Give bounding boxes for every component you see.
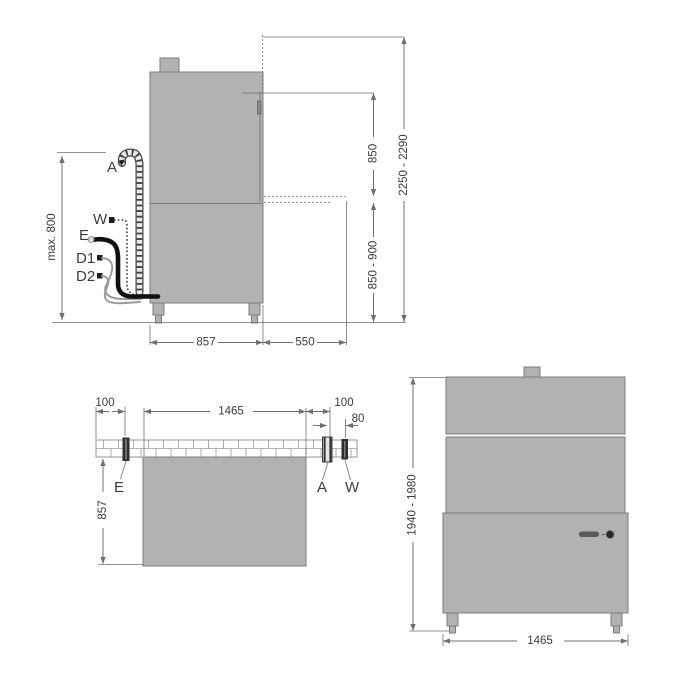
machine-base-front <box>443 513 628 613</box>
control-display <box>579 532 599 538</box>
label-top-e: E <box>114 479 124 496</box>
connector-water-w <box>342 439 349 460</box>
installation-drawing: A W E D1 D2 max. 800 857 550 850 <box>0 0 700 700</box>
dim-text-water-offset: 80 <box>352 413 365 425</box>
dim-text-hood-opening: 850 <box>368 144 380 163</box>
label-dosing-d1: D1 <box>76 250 95 267</box>
wall <box>96 440 357 457</box>
water-hose-w <box>109 217 152 295</box>
power-cable-e <box>88 237 158 297</box>
dim-water-offset: 80 <box>313 413 364 438</box>
dim-drain-offset: 100 <box>306 397 354 436</box>
dim-text-body-depth-top: 857 <box>97 500 109 519</box>
dim-text-table-height: 850 - 900 <box>368 241 380 290</box>
label-water-w: W <box>93 211 108 228</box>
label-top-w: W <box>345 479 360 496</box>
dim-text-electric-offset: 100 <box>95 397 114 409</box>
leader-w <box>345 460 351 480</box>
dim-text-table-depth: 550 <box>295 337 314 349</box>
connector-drain-a <box>323 437 333 462</box>
control-knob <box>606 531 614 539</box>
front-view: 1940 - 1980 1465 <box>407 367 628 647</box>
dim-text-body-depth-side: 857 <box>196 337 215 349</box>
leader-e <box>121 461 127 479</box>
label-drain-a: A <box>107 159 117 176</box>
machine-hood-front <box>446 437 625 513</box>
hood-handle <box>258 101 262 114</box>
dim-total-height: 2250 - 2290 <box>398 37 410 322</box>
vent-cap-side <box>160 58 179 72</box>
label-dosing-d2: D2 <box>76 268 95 285</box>
label-top-a: A <box>317 479 327 496</box>
dim-text-total-height: 2250 - 2290 <box>398 134 410 195</box>
leader-a <box>323 463 329 481</box>
label-electric-e: E <box>79 227 89 244</box>
dim-hood-opening: 850 <box>368 93 380 196</box>
vent-cap-front <box>524 367 540 377</box>
dim-body-width-front: 1465 <box>443 634 628 647</box>
machine-feet-side <box>153 303 260 323</box>
dim-text-height-range: 1940 - 1980 <box>407 474 419 535</box>
dim-table-height: 850 - 900 <box>368 203 380 322</box>
top-view: E A W 100 1465 100 80 <box>95 397 364 566</box>
dim-text-drain-offset: 100 <box>334 397 353 409</box>
machine-body-side <box>150 72 263 303</box>
dim-body-depth-side: 857 <box>150 337 263 349</box>
connector-electric-e <box>123 438 130 462</box>
machine-feet-front <box>447 613 622 633</box>
dim-text-body-width-top: 1465 <box>218 406 244 418</box>
dim-body-depth-top: 857 <box>97 459 143 565</box>
dim-text-body-width-front: 1465 <box>527 635 553 647</box>
dim-electric-offset: 100 <box>95 397 125 439</box>
machine-footprint <box>143 457 306 566</box>
dim-text-hose-height: max. 800 <box>46 213 58 260</box>
drain-hose-a <box>119 153 140 293</box>
dim-hose-height: max. 800 <box>46 153 106 321</box>
dim-table-depth: 550 <box>263 337 346 349</box>
machine-top-panel-front <box>446 377 625 434</box>
side-view: A W E D1 D2 max. 800 857 550 850 <box>46 35 410 349</box>
